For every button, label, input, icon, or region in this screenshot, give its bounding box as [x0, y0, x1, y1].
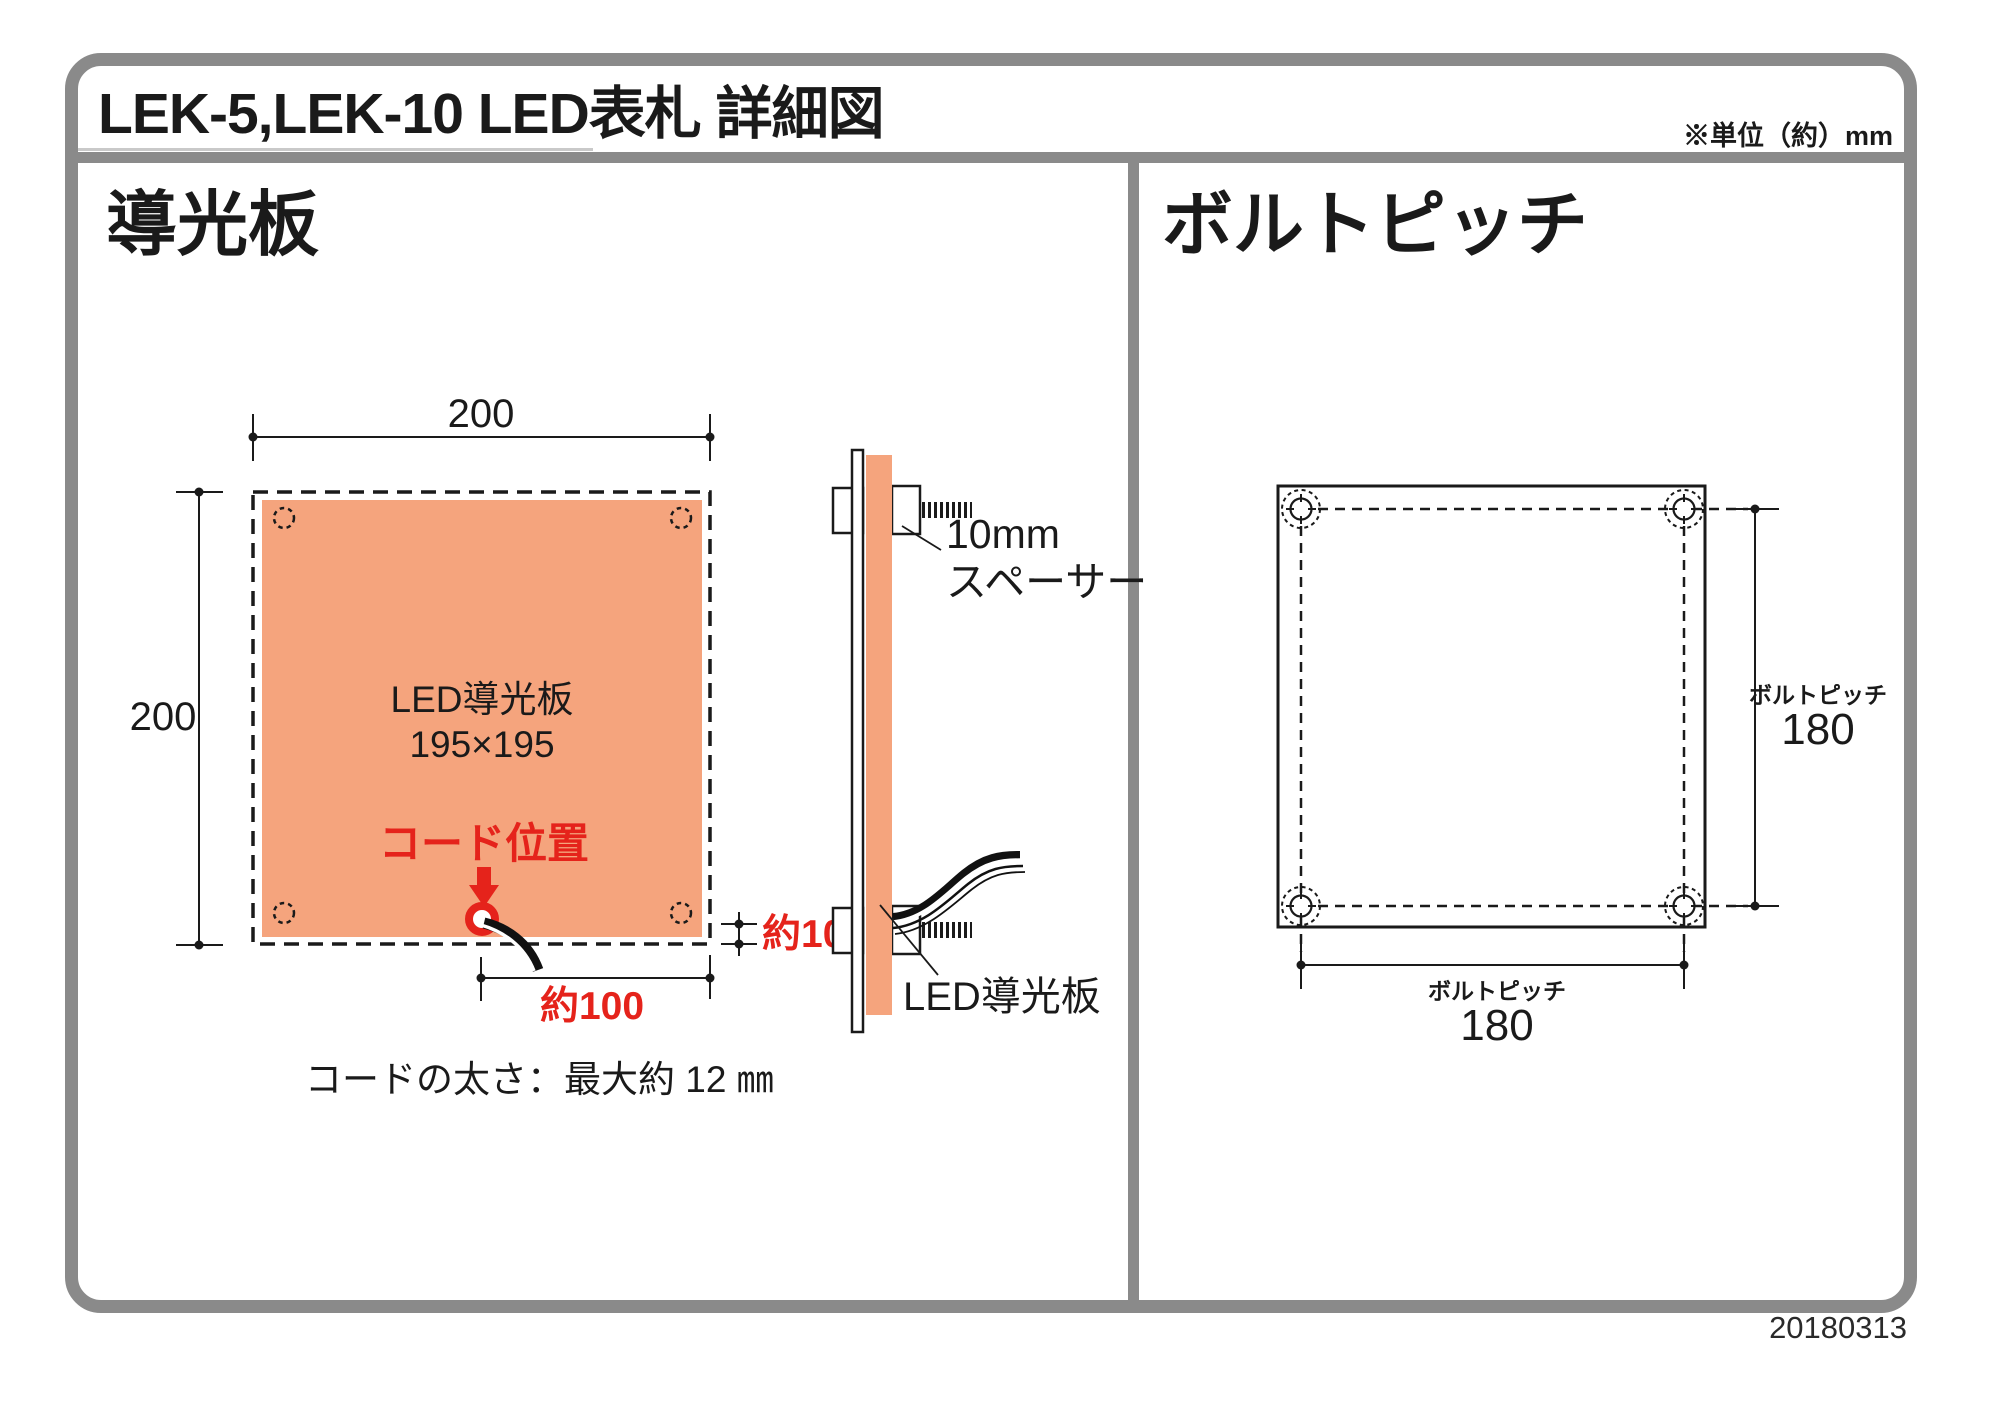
top-dimension-value: 200 [448, 392, 515, 436]
leader-line [902, 526, 941, 550]
dimension-dot [195, 941, 204, 950]
dimension-dot [1680, 961, 1689, 970]
light-guide-strip [866, 455, 892, 1015]
plate-name-label: LED導光板 [391, 679, 574, 720]
v-pitch-value: 180 [1781, 705, 1854, 754]
bolt-pitch-view: ボルトピッチ 180 ボルトピッチ 180 [1278, 486, 1887, 1050]
spacer-name-label: スペーサー [946, 559, 1147, 605]
dimension-dot [1751, 902, 1760, 911]
front-view: 200 200 LED導光板 195×195 コード位置 約100 [130, 392, 845, 1100]
side-view: 10mm スペーサー LED導光板 [833, 450, 1147, 1032]
side-plate-label: LED導光板 [903, 975, 1101, 1019]
left-dimension-value: 200 [130, 695, 197, 739]
dimension-dot [477, 974, 486, 983]
diagram-canvas: 200 200 LED導光板 195×195 コード位置 約100 [0, 0, 2000, 1414]
cord-position-label: コード位置 [379, 820, 589, 867]
dimension-dot [706, 974, 715, 983]
edge-gap-dimension [721, 912, 757, 956]
spacer-size-label: 10mm [946, 511, 1060, 557]
dimension-dot [735, 940, 744, 949]
h-pitch-value: 180 [1460, 1001, 1533, 1050]
acrylic-plate-edge [852, 450, 863, 1032]
dimension-dot [1751, 505, 1760, 514]
dimension-dot [249, 433, 258, 442]
dimension-dot [195, 488, 204, 497]
bolt-pitch-plate [1278, 486, 1705, 927]
dimension-dot [1297, 961, 1306, 970]
plate-size-label: 195×195 [409, 724, 554, 765]
dimension-dot [735, 920, 744, 929]
cord-thickness-note: コードの太さ：最大約 12 ㎜ [305, 1059, 774, 1100]
spacer-block [892, 486, 920, 534]
dimension-dot [706, 433, 715, 442]
cord-offset-value: 約100 [540, 985, 644, 1028]
